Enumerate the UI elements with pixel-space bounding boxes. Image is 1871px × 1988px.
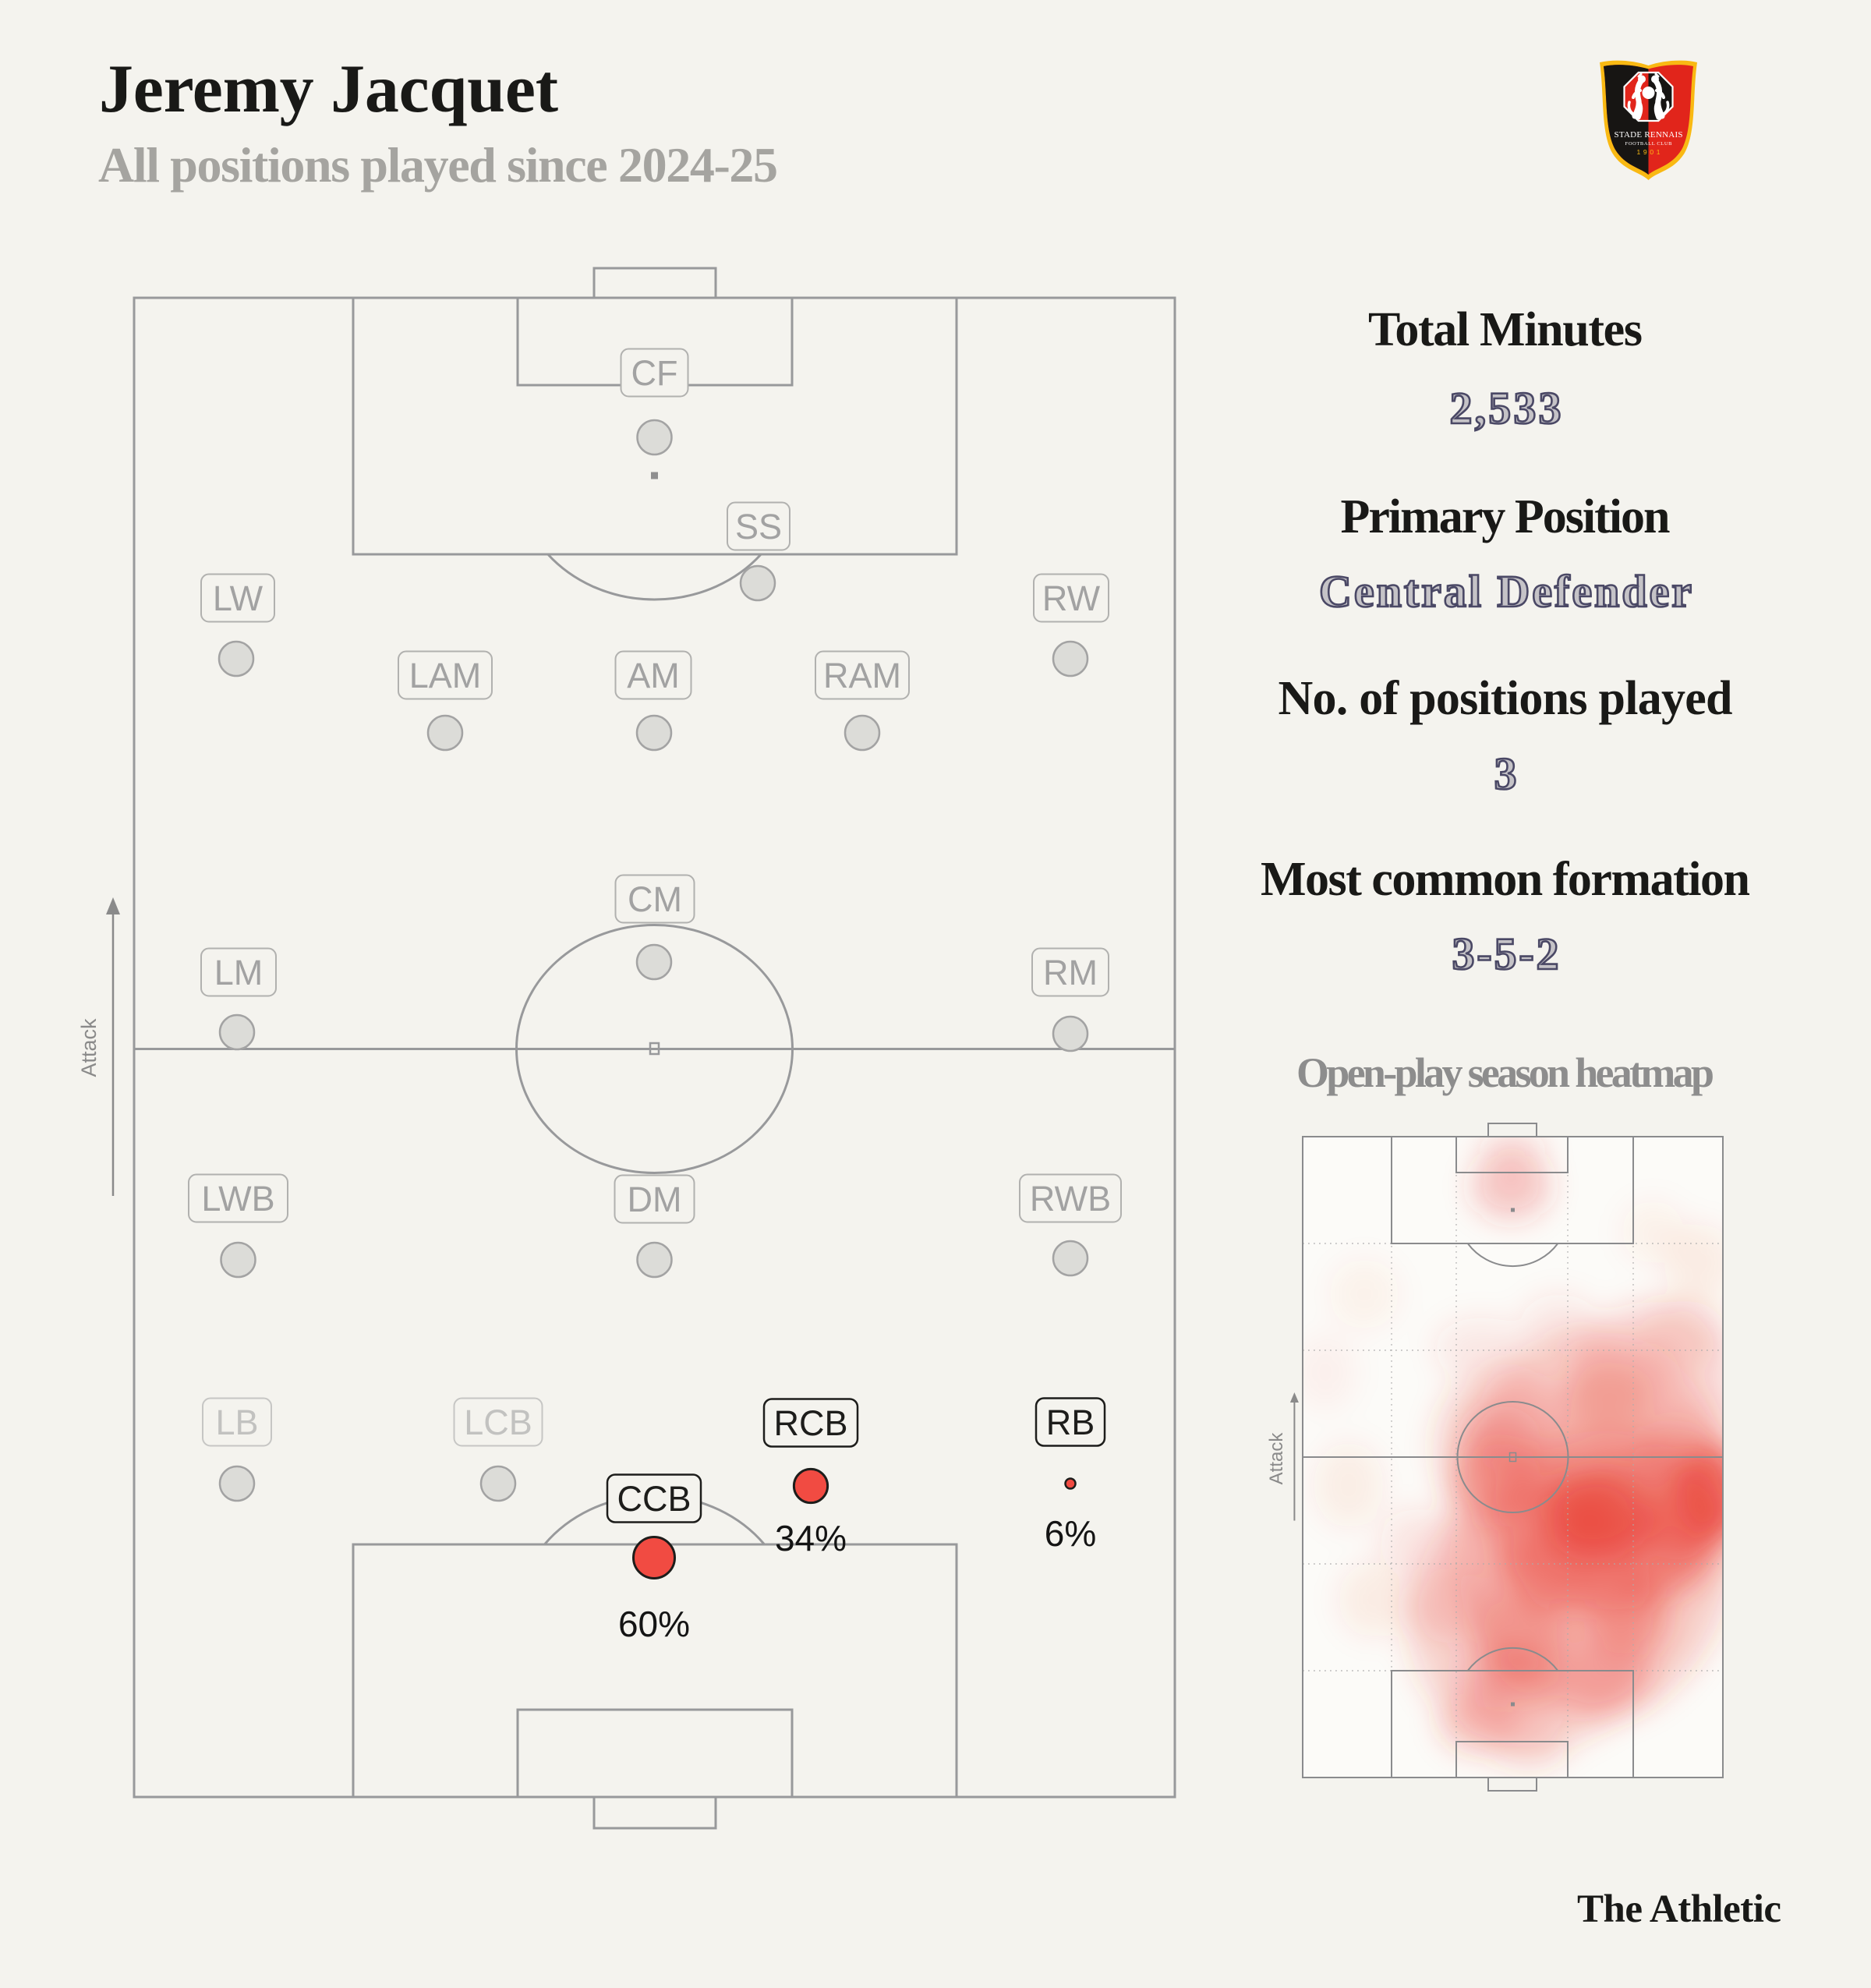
svg-text:Open-play season heatmap: Open-play season heatmap (1296, 1049, 1714, 1096)
svg-text:RB: RB (1046, 1403, 1095, 1442)
svg-text:LB: LB (215, 1403, 258, 1442)
svg-text:RCB: RCB (773, 1403, 847, 1443)
svg-text:2,533: 2,533 (1450, 383, 1562, 433)
svg-text:DM: DM (628, 1180, 682, 1219)
svg-text:CM: CM (628, 879, 682, 919)
svg-text:3-5-2: 3-5-2 (1452, 929, 1559, 979)
svg-text:No. of positions played: No. of positions played (1279, 672, 1733, 725)
svg-text:34%: 34% (775, 1518, 847, 1558)
svg-text:3: 3 (1494, 748, 1517, 799)
svg-text:LW: LW (213, 578, 263, 618)
svg-text:Primary Position: Primary Position (1341, 490, 1671, 543)
svg-text:Most common formation: Most common formation (1261, 853, 1750, 906)
svg-text:6%: 6% (1045, 1513, 1096, 1554)
svg-text:RAM: RAM (823, 656, 901, 695)
svg-text:Attack: Attack (1266, 1432, 1287, 1485)
svg-text:RWB: RWB (1030, 1179, 1111, 1219)
svg-text:STADE RENNAIS: STADE RENNAIS (1615, 130, 1683, 140)
svg-text:60%: 60% (618, 1604, 690, 1644)
svg-text:CF: CF (631, 353, 678, 393)
svg-text:RM: RM (1043, 953, 1098, 992)
svg-text:SS: SS (735, 507, 782, 547)
svg-text:CCB: CCB (617, 1479, 691, 1519)
svg-text:The Athletic: The Athletic (1577, 1887, 1781, 1931)
svg-text:Attack: Attack (77, 1018, 101, 1077)
svg-text:RW: RW (1042, 578, 1101, 618)
svg-text:LCB: LCB (464, 1403, 532, 1442)
svg-text:Total Minutes: Total Minutes (1368, 303, 1643, 356)
svg-text:LAM: LAM (409, 656, 482, 695)
svg-text:Jeremy Jacquet: Jeremy Jacquet (99, 51, 558, 127)
svg-text:All positions played since 202: All positions played since 2024-25 (98, 137, 778, 193)
svg-text:FOOTBALL CLUB: FOOTBALL CLUB (1625, 141, 1673, 147)
svg-text:AM: AM (627, 656, 680, 695)
svg-text:LM: LM (214, 953, 263, 992)
svg-text:LWB: LWB (201, 1179, 274, 1219)
